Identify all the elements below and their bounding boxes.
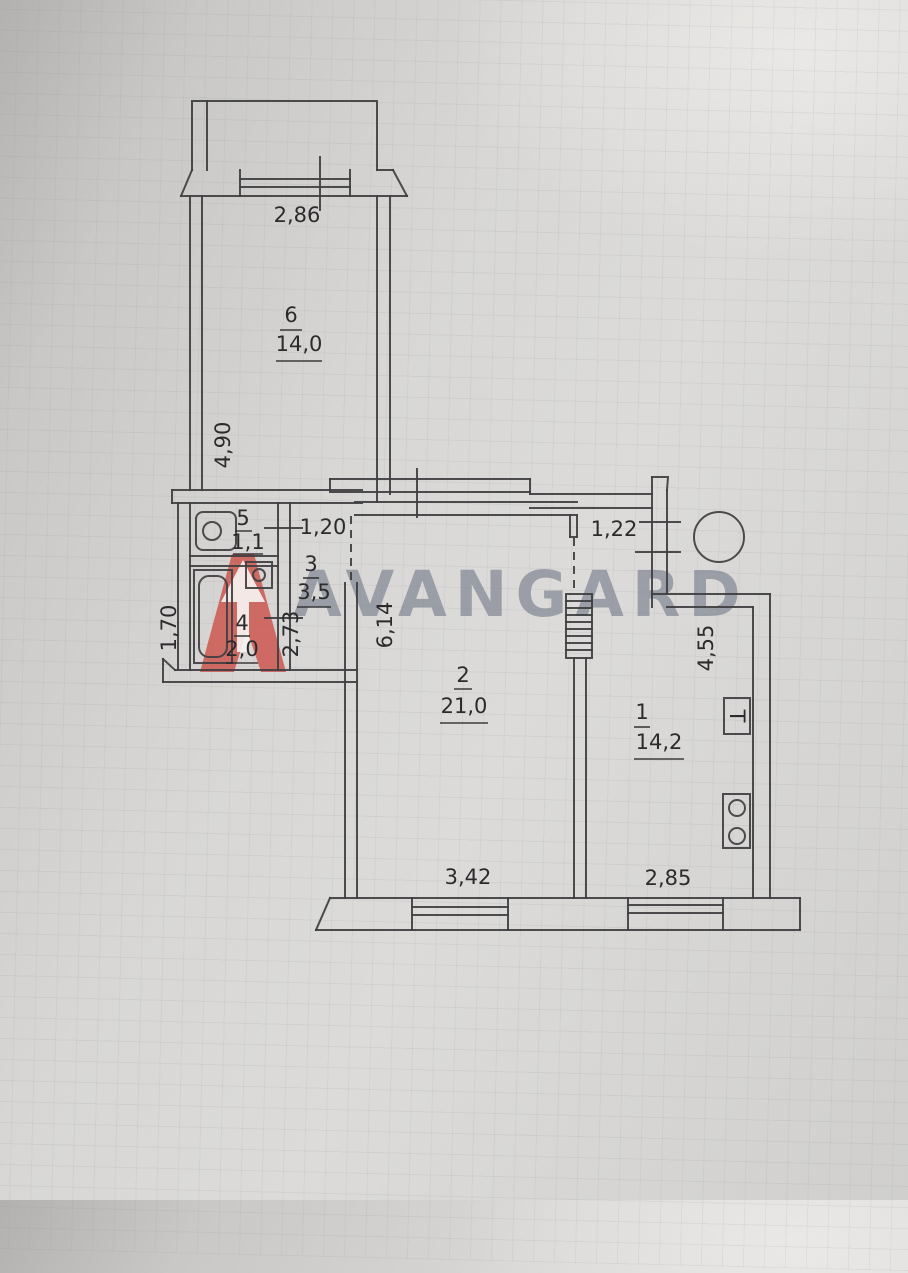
- dim-room2-depth: 6,14: [373, 602, 397, 649]
- room6-area: 14,0: [276, 332, 323, 356]
- room5-area: 1,1: [231, 530, 264, 554]
- room4-area: 2,0: [225, 637, 258, 661]
- heater-label: T: [725, 709, 749, 723]
- window-room2: [412, 898, 508, 930]
- room4-number: 4: [235, 611, 248, 635]
- stove-symbol: [723, 794, 750, 848]
- room2-number: 2: [456, 663, 469, 687]
- dim-balcony-width: 2,86: [274, 203, 321, 227]
- dim-kitchen-opening: 1,22: [591, 517, 638, 541]
- room1-label: 1 14,2: [634, 700, 684, 759]
- room3-label: 3 3,5: [297, 552, 331, 607]
- room2-label: 2 21,0: [440, 663, 488, 723]
- dim-bath-depth: 1,70: [157, 605, 181, 652]
- column-circle: [694, 512, 744, 562]
- room1-number: 1: [635, 700, 648, 724]
- floor-plan-drawing: T 2,86 4,90 1,20 2,73 1,70 6,14 3,42 1,2…: [0, 0, 908, 1200]
- room4-label: 4 2,0: [225, 611, 258, 663]
- window-kitchen: [628, 898, 723, 930]
- room3-number: 3: [304, 552, 317, 576]
- room6-number: 6: [284, 303, 297, 327]
- dim-kitchen-depth: 4,55: [694, 625, 718, 672]
- room5-label: 5 1,1: [231, 506, 264, 554]
- dim-hall-width: 1,20: [300, 515, 347, 539]
- vent-shaft: [566, 594, 592, 898]
- bottom-wall: [316, 898, 800, 930]
- balcony-outline: [192, 101, 377, 170]
- dim-hall-depth: 2,73: [279, 611, 303, 658]
- water-heater-symbol: T: [724, 698, 750, 734]
- room2-area: 21,0: [441, 694, 488, 718]
- room1-area: 14,2: [636, 730, 683, 754]
- room5-number: 5: [236, 506, 249, 530]
- dim-kitchen-width: 2,85: [645, 866, 692, 890]
- dim-room6-depth: 4,90: [211, 422, 235, 469]
- room6-label: 6 14,0: [276, 303, 323, 361]
- room3-area: 3,5: [297, 580, 330, 604]
- dim-room2-width: 3,42: [445, 865, 492, 889]
- floor-plan-scan: { "watermark": { "brand": "AVANGARD", "b…: [0, 0, 908, 1200]
- toilet-symbol: [196, 512, 236, 550]
